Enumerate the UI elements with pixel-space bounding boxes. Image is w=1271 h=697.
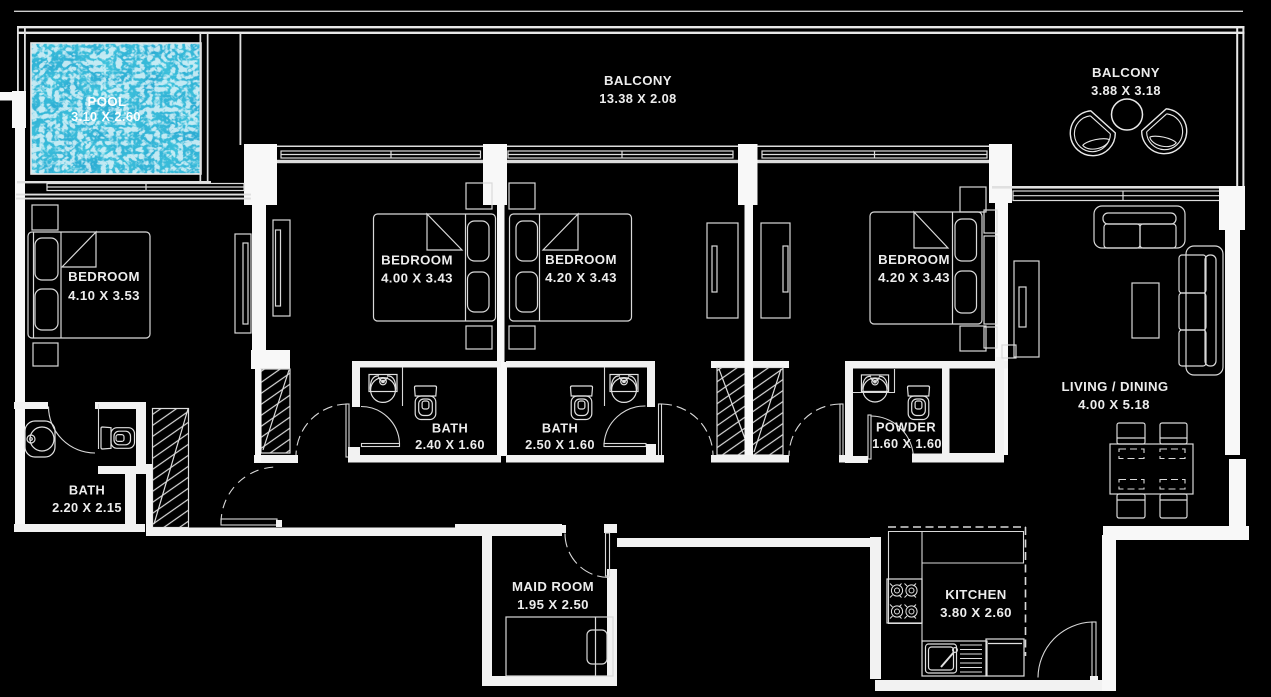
svg-text:2.50 X 1.60: 2.50 X 1.60 <box>525 437 595 452</box>
svg-text:4.20 X 3.43: 4.20 X 3.43 <box>878 270 950 285</box>
svg-text:LIVING / DINING: LIVING / DINING <box>1061 379 1168 394</box>
svg-text:3.10 X 2.60: 3.10 X 2.60 <box>71 109 141 124</box>
svg-text:4.00 X 5.18: 4.00 X 5.18 <box>1078 397 1150 412</box>
svg-text:MAID ROOM: MAID ROOM <box>512 579 594 594</box>
svg-text:4.10 X 3.53: 4.10 X 3.53 <box>68 288 140 303</box>
svg-text:BATH: BATH <box>542 421 578 436</box>
svg-text:2.20 X 2.15: 2.20 X 2.15 <box>52 500 122 515</box>
svg-text:4.20 X 3.43: 4.20 X 3.43 <box>545 270 617 285</box>
svg-text:2.40 X 1.60: 2.40 X 1.60 <box>415 437 485 452</box>
svg-text:13.38 X 2.08: 13.38 X 2.08 <box>599 91 676 106</box>
svg-text:BALCONY: BALCONY <box>604 73 672 88</box>
svg-text:4.00 X 3.43: 4.00 X 3.43 <box>381 271 453 286</box>
svg-text:3.88 X 3.18: 3.88 X 3.18 <box>1091 83 1161 98</box>
svg-text:BATH: BATH <box>432 421 468 436</box>
svg-text:KITCHEN: KITCHEN <box>945 587 1006 602</box>
svg-text:BEDROOM: BEDROOM <box>545 252 617 267</box>
svg-text:BEDROOM: BEDROOM <box>68 269 140 284</box>
svg-text:BATH: BATH <box>69 483 105 498</box>
svg-text:POOL: POOL <box>88 94 127 109</box>
svg-text:POWDER: POWDER <box>876 420 936 435</box>
svg-text:BEDROOM: BEDROOM <box>878 252 950 267</box>
svg-text:1.60 X 1.60: 1.60 X 1.60 <box>872 436 942 451</box>
svg-text:3.80 X 2.60: 3.80 X 2.60 <box>940 605 1012 620</box>
svg-text:BALCONY: BALCONY <box>1092 65 1160 80</box>
svg-text:BEDROOM: BEDROOM <box>381 253 453 268</box>
svg-text:1.95 X 2.50: 1.95 X 2.50 <box>517 597 589 612</box>
